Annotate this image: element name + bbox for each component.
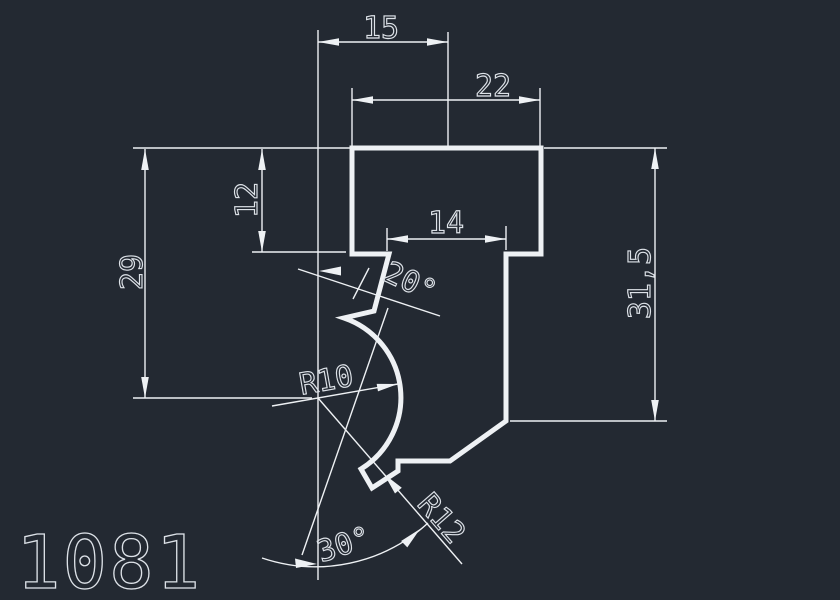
dim-label-left-height: 29	[115, 254, 150, 290]
dimension-lines	[145, 42, 655, 421]
cad-canvas: 15 22 12 29 14 31,5 20° R10 R12 30° 1081	[0, 0, 840, 600]
dim-label-hat-width: 22	[475, 69, 511, 104]
dim-label-top-offset: 15	[363, 11, 399, 46]
profile-outline	[344, 148, 541, 488]
ext-line-slot-direction	[302, 308, 388, 555]
dim-label-right-height: 31,5	[623, 247, 658, 319]
cad-drawing-viewport: 15 22 12 29 14 31,5 20° R10 R12 30° 1081	[0, 0, 840, 600]
dimension-labels: 15 22 12 29 14 31,5 20° R10 R12 30°	[115, 11, 658, 570]
part-number: 1081	[16, 520, 202, 600]
dim-label-stem-width: 14	[428, 206, 464, 241]
arrowhead-tip-angle-right	[401, 529, 420, 547]
dim-label-step-depth: 12	[230, 182, 265, 218]
dim-label-tip-angle: 30°	[313, 520, 375, 570]
dim-label-groove-radius: R10	[297, 359, 356, 403]
tick-slot-angle	[353, 268, 369, 299]
extension-lines	[133, 30, 667, 580]
dim-label-tip-radius: R12	[410, 487, 472, 551]
arrowhead-slot-angle	[319, 267, 341, 276]
